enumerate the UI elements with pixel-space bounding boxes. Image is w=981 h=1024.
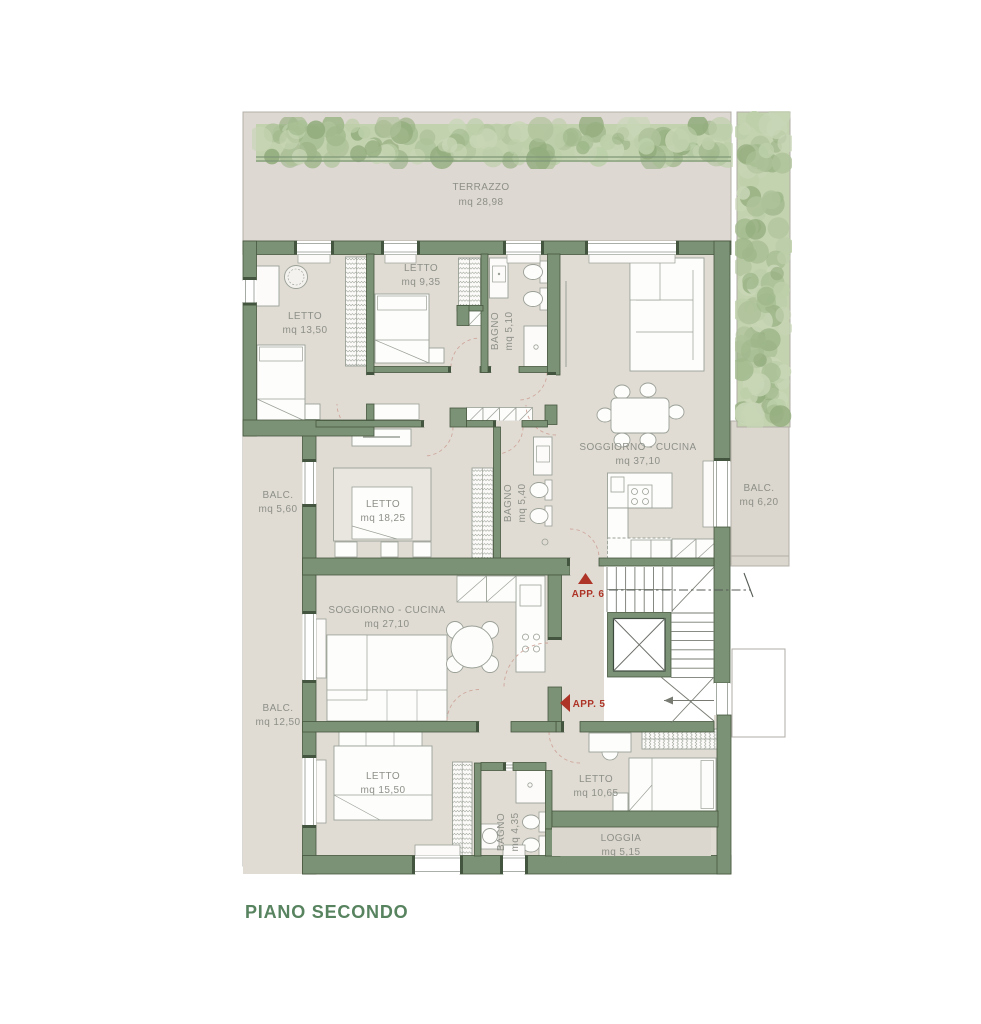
svg-text:mq 9,35: mq 9,35 <box>402 277 441 288</box>
svg-text:mq 13,50: mq 13,50 <box>283 325 328 336</box>
svg-text:APP. 5: APP. 5 <box>573 699 606 710</box>
svg-text:BAGNO: BAGNO <box>496 813 507 851</box>
svg-text:LETTO: LETTO <box>366 499 400 510</box>
svg-text:TERRAZZO: TERRAZZO <box>452 182 509 193</box>
svg-text:BAGNO: BAGNO <box>490 312 501 350</box>
svg-text:LOGGIA: LOGGIA <box>601 833 642 844</box>
svg-text:mq 5,40: mq 5,40 <box>517 483 528 522</box>
svg-text:mq 18,25: mq 18,25 <box>361 513 406 524</box>
svg-text:mq 5,10: mq 5,10 <box>504 311 515 350</box>
svg-text:mq 5,60: mq 5,60 <box>259 504 298 515</box>
svg-text:mq 15,50: mq 15,50 <box>361 785 406 796</box>
svg-text:mq 37,10: mq 37,10 <box>616 456 661 467</box>
svg-text:APP. 6: APP. 6 <box>572 589 605 600</box>
svg-text:LETTO: LETTO <box>404 263 438 274</box>
svg-text:LETTO: LETTO <box>366 771 400 782</box>
svg-text:mq 12,50: mq 12,50 <box>256 717 301 728</box>
svg-text:BALC.: BALC. <box>263 703 294 714</box>
svg-text:BALC.: BALC. <box>744 483 775 494</box>
svg-text:PIANO SECONDO: PIANO SECONDO <box>245 902 408 922</box>
svg-text:mq 6,20: mq 6,20 <box>740 497 779 508</box>
svg-text:SOGGIORNO - CUCINA: SOGGIORNO - CUCINA <box>328 605 445 616</box>
svg-text:mq 5,15: mq 5,15 <box>602 847 641 858</box>
svg-text:BALC.: BALC. <box>263 490 294 501</box>
svg-text:LETTO: LETTO <box>579 774 613 785</box>
svg-text:mq 28,98: mq 28,98 <box>459 197 504 208</box>
svg-text:mq 10,65: mq 10,65 <box>574 788 619 799</box>
svg-text:LETTO: LETTO <box>288 311 322 322</box>
svg-text:mq 27,10: mq 27,10 <box>365 619 410 630</box>
svg-text:SOGGIORNO - CUCINA: SOGGIORNO - CUCINA <box>579 442 696 453</box>
svg-text:BAGNO: BAGNO <box>503 484 514 522</box>
svg-text:mq 4,35: mq 4,35 <box>510 812 521 851</box>
